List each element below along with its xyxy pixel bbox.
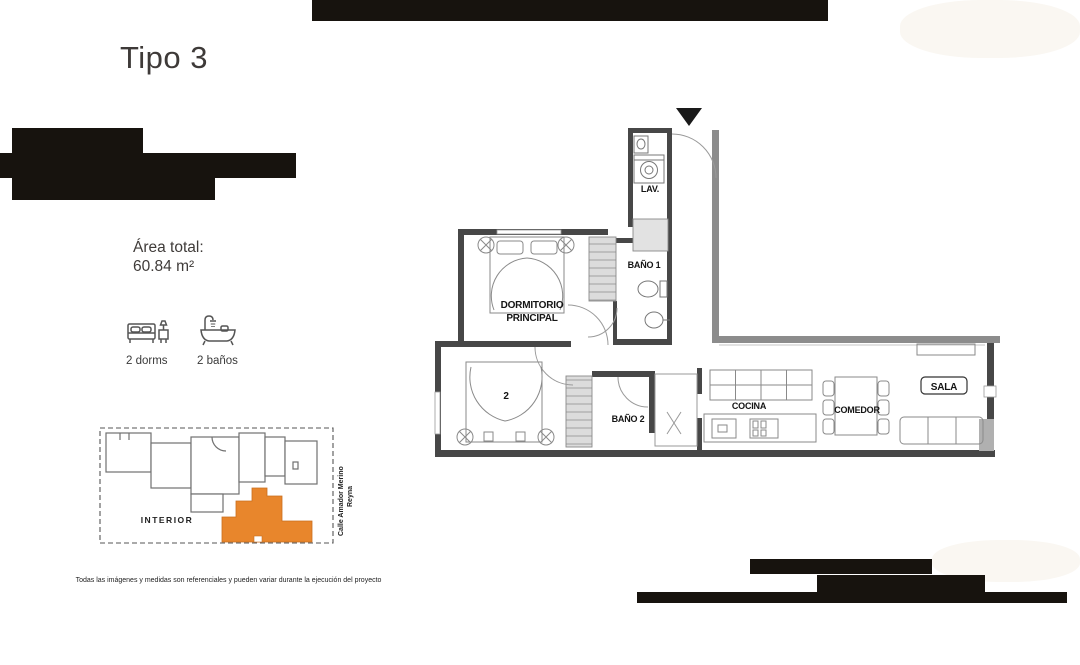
site-key-plan: INTERIOR Calle Amador Merino Reyna: [96, 424, 358, 556]
walls: [435, 128, 1000, 457]
feature-dorms-label: 2 dorms: [126, 355, 196, 367]
bed-icon: [126, 312, 196, 350]
bed2: [466, 362, 542, 442]
feature-dorms: 2 dorms: [126, 312, 196, 367]
bathtub-icon: [197, 312, 267, 350]
room-label-cocina: COCINA: [732, 401, 767, 411]
toilet-icon: [638, 281, 667, 297]
redacted-bar-left-3: [12, 178, 215, 200]
laundry-sink-icon: [634, 136, 648, 153]
disclaimer-text: Todas las imágenes y medidas son referen…: [36, 577, 421, 584]
redacted-bar-bottom-3: [637, 592, 1067, 603]
room-label-comedor: COMEDOR: [834, 405, 880, 415]
room-label-lav: LAV.: [641, 184, 659, 194]
sink-icon: [645, 312, 670, 328]
area-label: Área total:: [133, 239, 204, 256]
area-value: 60.84 m²: [133, 258, 194, 275]
door-arcs: [535, 134, 716, 407]
brochure-page: Tipo 3 Área total: 60.84 m² 2 dorms: [0, 0, 1080, 665]
interior-label: INTERIOR: [141, 515, 194, 525]
room-label-dormitorio-1: DORMITORIO: [501, 300, 564, 311]
room-label-dorm2: 2: [503, 391, 509, 402]
redacted-bar-bottom-1: [750, 559, 932, 574]
feature-banos-label: 2 baños: [197, 355, 267, 367]
redacted-bar-left-2: [0, 153, 296, 178]
area-total: Área total: 60.84 m²: [133, 238, 204, 277]
room-label-bano1: BAÑO 1: [628, 260, 661, 270]
tv-console: [917, 344, 975, 355]
redacted-bar-top: [312, 0, 828, 21]
entrance-arrow-icon: [676, 108, 702, 126]
unit-notch: [254, 536, 262, 542]
sofa: [900, 417, 983, 444]
room-label-dormitorio-2: PRINCIPAL: [506, 313, 557, 324]
duct-shaft: [655, 374, 697, 446]
floor-plan: LAV. BAÑO 1 DORMITORIO PRINCIPAL 2 BAÑO …: [425, 95, 1010, 470]
building-outline: [106, 433, 317, 512]
street-name-line2: Reyna: [347, 486, 354, 507]
room-label-sala: SALA: [931, 382, 957, 393]
redacted-bar-bottom-2: [817, 575, 985, 593]
redacted-bar-left-1: [12, 128, 143, 153]
page-title: Tipo 3: [120, 40, 208, 76]
street-name-line1: Calle Amador Merino: [338, 466, 345, 536]
kitchen-sink-icon: [712, 419, 736, 438]
feature-banos: 2 baños: [197, 312, 267, 367]
highlighted-unit: [222, 488, 312, 542]
room-label-bano2: BAÑO 2: [612, 414, 645, 424]
washing-machine-icon: [634, 155, 664, 183]
scan-smudge: [900, 0, 1080, 58]
stove-icon: [750, 419, 778, 438]
